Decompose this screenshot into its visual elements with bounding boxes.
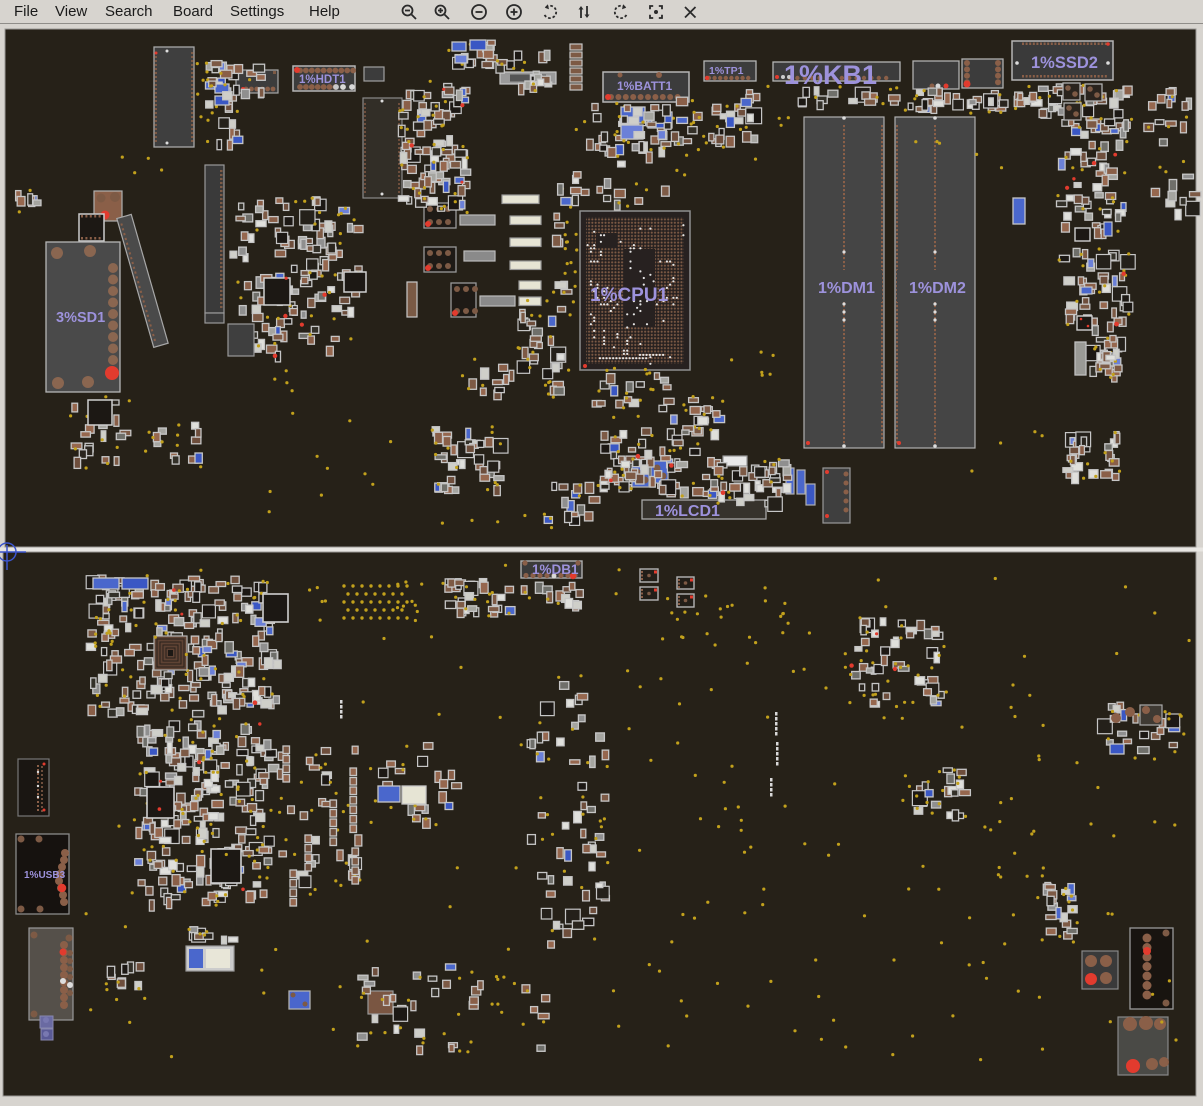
svg-text:1%DB1: 1%DB1 <box>532 562 579 577</box>
svg-text:1%USB3: 1%USB3 <box>24 870 66 881</box>
svg-text:1%DM2: 1%DM2 <box>909 280 966 297</box>
svg-text:1%KB1: 1%KB1 <box>784 60 877 90</box>
svg-text:1%CPU1: 1%CPU1 <box>590 285 669 306</box>
svg-text:1%HDT1: 1%HDT1 <box>299 74 346 86</box>
svg-text:3%SD1: 3%SD1 <box>56 310 105 326</box>
svg-text:1%DM1: 1%DM1 <box>818 280 875 297</box>
svg-text:1%TP1: 1%TP1 <box>709 65 744 77</box>
svg-text:1%SSD2: 1%SSD2 <box>1031 54 1098 72</box>
svg-text:1%BATT1: 1%BATT1 <box>617 79 672 93</box>
svg-text:1%LCD1: 1%LCD1 <box>655 503 720 520</box>
